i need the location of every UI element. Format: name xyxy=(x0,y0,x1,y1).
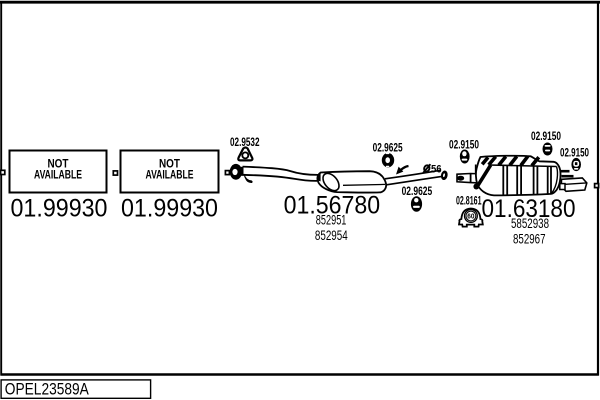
svg-text:01.99930: 01.99930 xyxy=(11,194,108,222)
svg-text:OPEL23589A: OPEL23589A xyxy=(5,381,89,399)
svg-text:02.9625: 02.9625 xyxy=(373,141,403,155)
svg-text:60: 60 xyxy=(467,214,474,221)
svg-text:AVAILABLE: AVAILABLE xyxy=(146,170,194,182)
svg-text:852951: 852951 xyxy=(316,213,347,228)
svg-text:02.9150: 02.9150 xyxy=(531,129,561,143)
svg-text:852954: 852954 xyxy=(315,228,348,243)
svg-text:02.9150: 02.9150 xyxy=(449,137,479,151)
svg-text:02.9625: 02.9625 xyxy=(402,184,433,198)
svg-text:02.9150: 02.9150 xyxy=(560,146,589,160)
svg-text:AVAILABLE: AVAILABLE xyxy=(34,170,82,182)
svg-text:56: 56 xyxy=(431,163,442,175)
svg-text:5852938: 5852938 xyxy=(511,216,549,231)
svg-text:02.8161: 02.8161 xyxy=(456,193,482,207)
svg-text:852967: 852967 xyxy=(513,232,546,247)
svg-text:01.99930: 01.99930 xyxy=(121,194,218,222)
